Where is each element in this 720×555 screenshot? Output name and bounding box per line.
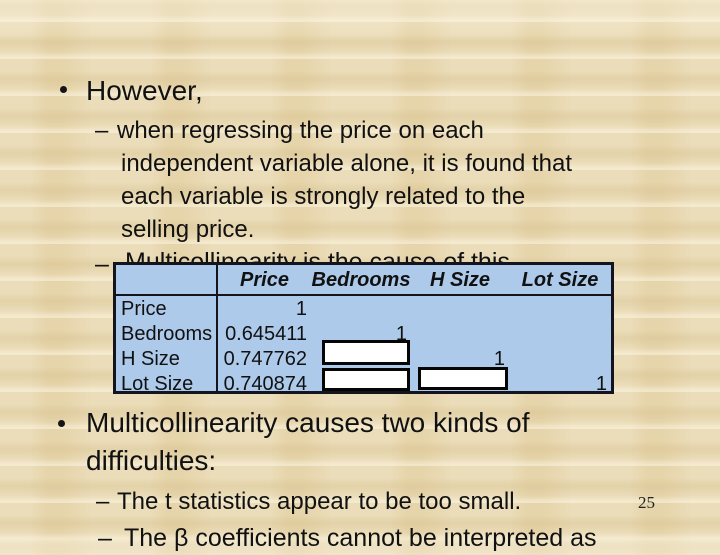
row-label-hsize: H Size	[121, 347, 180, 371]
cell-bedrooms-price: 0.645411	[218, 322, 311, 346]
bullet-line: difficulties:	[86, 442, 530, 480]
sub-bullet-line: selling price.	[117, 213, 572, 246]
sub-bullet-line: when regressing the price on each	[117, 114, 572, 147]
cell-lotsize-price: 0.740874	[218, 372, 311, 396]
table-header-divider	[116, 294, 611, 296]
mask-box-lotsize-bedrooms	[322, 368, 410, 391]
page-number: 25	[638, 493, 655, 513]
mask-box-lotsize-hsize	[418, 367, 508, 390]
cell-hsize-price: 0.747762	[218, 347, 311, 371]
column-header-hsize: H Size	[411, 268, 509, 294]
bullet-dot	[58, 420, 65, 427]
bullet-however: However,	[86, 72, 203, 110]
sub-bullet-beta-cutoff: The β coefficients cannot be interpreted…	[124, 522, 597, 555]
correlation-table: Price Bedrooms H Size Lot Size Price Bed…	[113, 262, 614, 394]
column-header-price: Price	[218, 268, 311, 294]
bullet-dot	[60, 86, 67, 93]
sub-bullet-regressing: when regressing the price on each indepe…	[117, 114, 572, 246]
row-label-price: Price	[121, 297, 167, 321]
cell-lotsize-lotsize: 1	[509, 372, 611, 396]
dash-marker: –	[98, 522, 112, 555]
dash-marker: –	[95, 114, 108, 147]
sub-bullet-tstats: The t statistics appear to be too small.	[117, 485, 521, 518]
column-header-bedrooms: Bedrooms	[311, 268, 411, 294]
row-label-bedrooms: Bedrooms	[121, 322, 212, 346]
bullet-line: Multicollinearity causes two kinds of	[86, 404, 530, 442]
bullet-causes: Multicollinearity causes two kinds of di…	[86, 404, 530, 480]
mask-box-hsize-bedrooms	[322, 340, 410, 365]
row-label-lotsize: Lot Size	[121, 372, 193, 396]
dash-marker: –	[96, 485, 109, 518]
cell-price-price: 1	[218, 297, 311, 321]
column-header-lotsize: Lot Size	[509, 268, 611, 294]
slide: { "slide": { "colors": { "background": "…	[0, 0, 720, 540]
sub-bullet-line: each variable is strongly related to the	[117, 180, 572, 213]
dash-marker: –	[95, 248, 109, 281]
sub-bullet-line: independent variable alone, it is found …	[117, 147, 572, 180]
